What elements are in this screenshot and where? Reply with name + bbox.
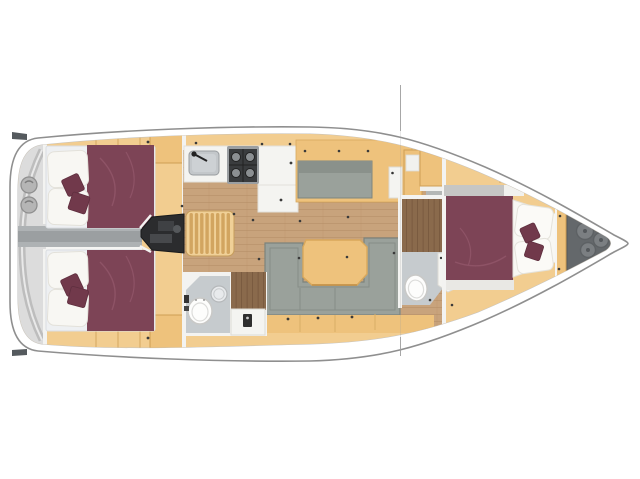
stair-slat <box>211 213 214 254</box>
cabinet-handle-icon <box>391 172 394 175</box>
settee-backrest <box>298 161 372 173</box>
toilet-hinge <box>195 299 197 301</box>
aft-head <box>183 272 267 336</box>
berth-mattress <box>87 145 154 228</box>
burner-icon <box>232 153 241 162</box>
bulkhead <box>442 148 446 334</box>
bulkhead <box>398 196 402 308</box>
berth-mattress <box>87 250 154 331</box>
stair-slat <box>190 213 193 254</box>
engine-detail <box>173 225 181 233</box>
berth-mattress <box>446 196 513 280</box>
shower-teak-planks <box>231 272 266 310</box>
anchor-hatch-dot <box>586 248 590 252</box>
floorplan-svg <box>0 0 640 479</box>
stern-winch-icon <box>21 197 37 213</box>
burner-icon <box>232 169 241 178</box>
head-teak-planks <box>402 199 443 252</box>
stern-winch-icon <box>21 177 37 193</box>
stern-corner-fitting <box>12 349 27 356</box>
stair-slat <box>195 213 198 254</box>
head-fitting <box>184 295 189 303</box>
engine-corridor-tread <box>16 231 142 242</box>
galley-sink-basin <box>192 154 216 172</box>
vanity-handle-icon <box>440 257 442 259</box>
burner-icon <box>246 153 255 162</box>
companionway-stairs <box>186 211 234 256</box>
dining-table <box>303 240 367 285</box>
head-fitting <box>184 306 189 311</box>
headboard-gray <box>444 185 504 196</box>
berth-foot-frame <box>446 280 514 290</box>
engine-detail <box>158 221 174 231</box>
fridge-counter <box>258 146 298 212</box>
soap-dispenser-dot <box>246 317 249 320</box>
bulkhead <box>400 195 444 199</box>
tall-cabinet-panel <box>406 155 419 171</box>
stair-slat <box>216 213 219 254</box>
engine-detail <box>150 234 172 243</box>
soap-dispenser <box>243 314 252 327</box>
stair-slat <box>200 213 203 254</box>
toilet-hinge <box>203 299 205 301</box>
stair-slat <box>205 213 208 254</box>
anchor-hatch-dot <box>583 229 587 233</box>
yacht-floorplan-image <box>0 0 640 479</box>
anchor-hatch-dot <box>599 238 603 242</box>
stern-corner-fitting <box>12 132 27 140</box>
stair-slat <box>227 213 230 254</box>
anchor-locker <box>556 205 616 282</box>
stair-slat <box>221 213 224 254</box>
burner-icon <box>246 169 255 178</box>
